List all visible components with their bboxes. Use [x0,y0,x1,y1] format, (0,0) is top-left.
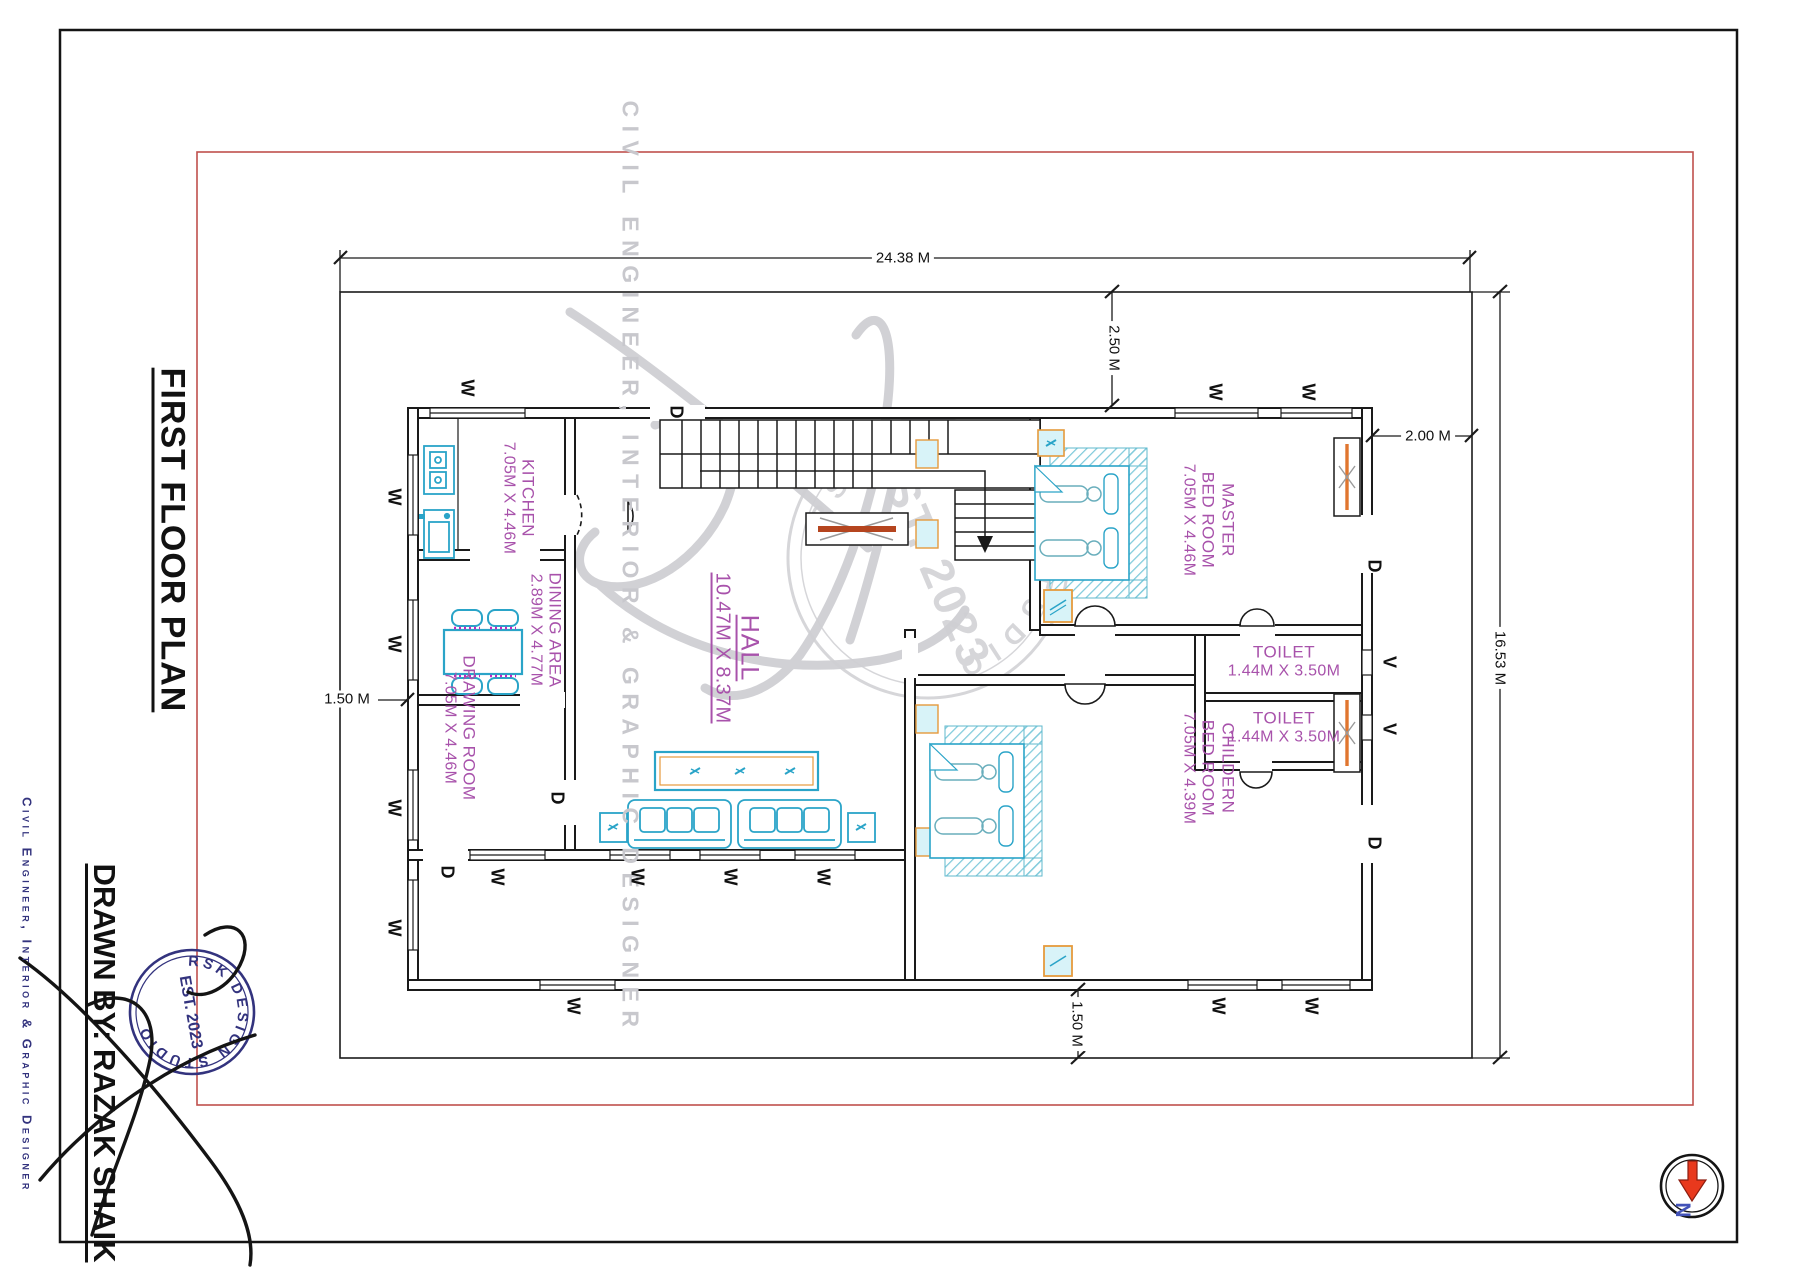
centre-table [655,752,818,790]
vent-label: V [1379,723,1400,735]
door-label: D [547,792,568,805]
door-label: D [666,406,687,419]
window-label: W [487,869,508,886]
master-mirror [1044,590,1072,622]
room-label: DINING AREA2.89M X 4.77M [526,572,565,687]
dimension-label: 24.38 M [872,250,934,267]
room-label: HALL10.47M X 8.37M [710,573,763,724]
window-label: W [384,489,405,506]
window-label: W [563,998,584,1015]
room-label: CHILDERNBED ROOM7.05M X 4.39M [1179,712,1238,824]
window-label: W [384,636,405,653]
sheet-border [60,30,1737,1242]
door-label: D [1364,837,1385,850]
dimension-label: 2.50 M [1106,321,1123,375]
window-label: W [1208,998,1229,1015]
stove-icon [424,446,454,494]
window-label: W [720,869,741,886]
plan-drawing: RSK DESIGN STUDIO EST. 2023 [0,0,1798,1271]
room-label: KITCHEN7.05M X 4.46M [499,442,538,554]
door-label: D [1364,560,1385,573]
dimension-label: 2.00 M [1401,428,1455,445]
sink-icon [419,510,454,558]
window-label: W [384,800,405,817]
window-label: W [627,869,648,886]
children-dresser-mirror [1044,946,1072,976]
room-label: DRAWING ROOM7.05M X 4.46M [440,655,479,800]
room-label: TOILET1.44M X 3.50M [1228,643,1340,682]
room-label: MASTERBED ROOM7.05M X 4.46M [1179,464,1238,576]
dimension-label: 16.53 M [1492,627,1509,689]
dimension-label: 1.50 M [320,691,374,708]
watermark-caption: CIVIL ENGINEER, INTERIOR & GRAPHIC DESIG… [617,100,644,1035]
tv-icon [818,526,896,532]
kitchen-fixtures [419,418,458,558]
window-label: W [384,920,405,937]
vent-label: V [1379,656,1400,668]
dimension-label: 1.50 M [1069,997,1086,1051]
window-label: W [1298,384,1319,401]
tv-console [806,513,908,545]
master-nightstand [1038,430,1064,456]
room-label: TOILET1.44M X 3.50M [1228,709,1340,748]
page-title: FIRST FLOOR PLAN [153,368,192,713]
floor-plan-sheet: RSK DESIGN STUDIO EST. 2023 [0,0,1798,1271]
window-label: W [1205,384,1226,401]
side-caption: Civil Engineer, Interior & Graphic Desig… [20,797,35,1193]
window-label: W [813,869,834,886]
sofa [628,800,841,848]
window-label: W [457,380,478,397]
north-label: N [1670,1202,1694,1217]
master-bed [1035,448,1147,598]
drawn-by-label: DRAWN BY: RAZAK SHAIK [86,864,122,1263]
children-bed [930,726,1042,876]
door-label: D [437,866,458,879]
window-label: W [1301,998,1322,1015]
stamp-est-text: EST. 2023 [176,974,206,1050]
